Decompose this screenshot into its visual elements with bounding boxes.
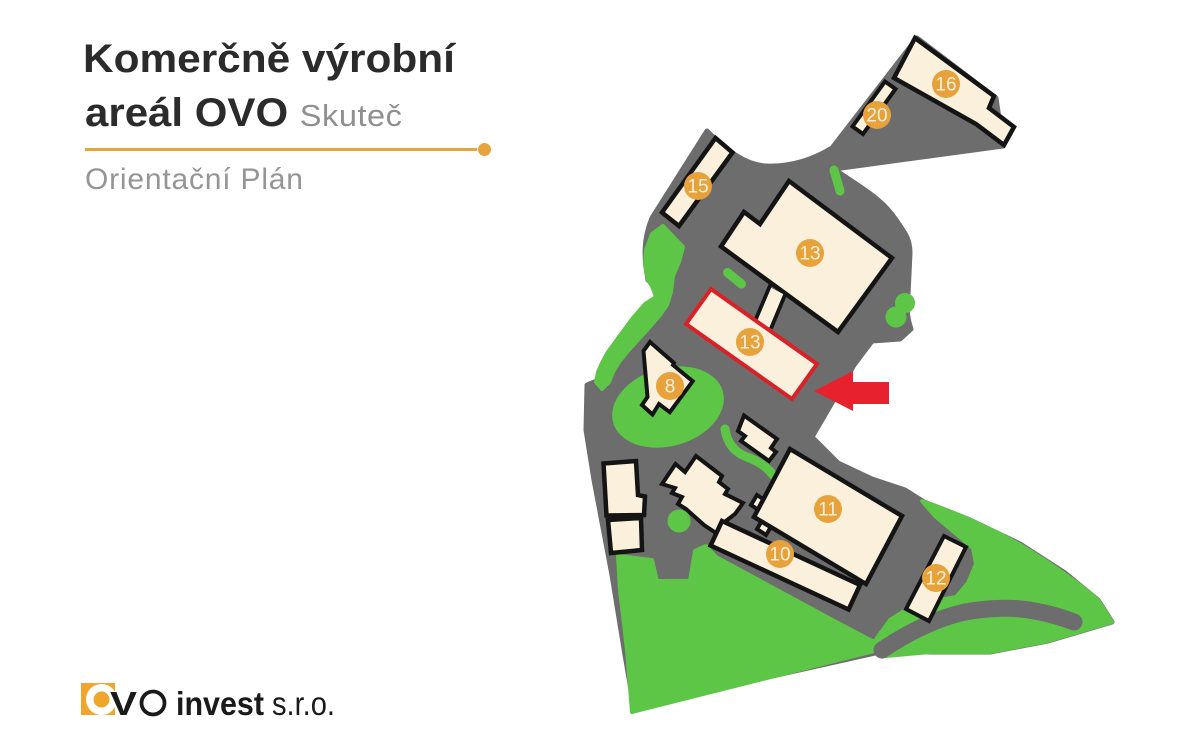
svg-text:8: 8 <box>665 377 676 398</box>
svg-text:12: 12 <box>925 569 946 590</box>
svg-text:16: 16 <box>935 75 956 96</box>
svg-text:13: 13 <box>799 244 820 265</box>
svg-text:15: 15 <box>687 177 708 198</box>
svg-text:20: 20 <box>866 106 887 127</box>
svg-text:10: 10 <box>769 545 790 566</box>
svg-text:13: 13 <box>739 333 760 354</box>
svg-text:V: V <box>110 685 137 722</box>
svg-text:s.r.o.: s.r.o. <box>272 685 335 722</box>
svg-text:invest: invest <box>176 685 264 722</box>
svg-text:11: 11 <box>818 500 838 521</box>
